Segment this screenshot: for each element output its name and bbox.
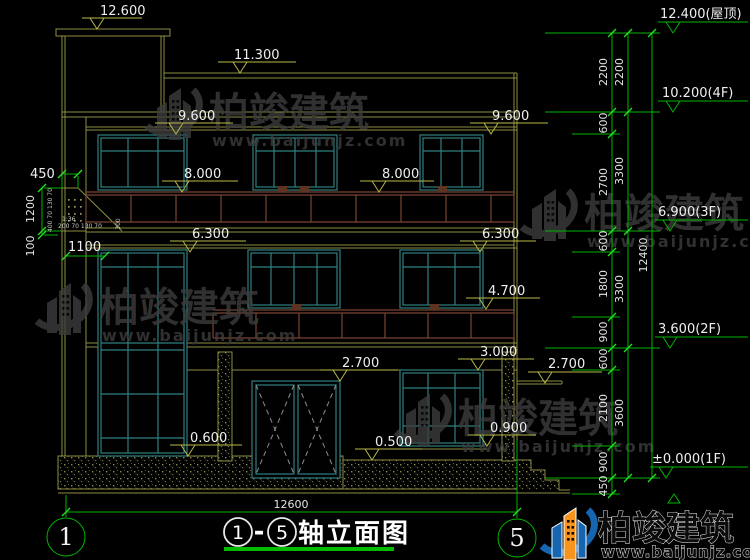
level-label-1f: ±0.000(1F)	[652, 452, 726, 467]
svg-text:11.300: 11.300	[234, 48, 280, 63]
dim-total-width: 12600	[274, 498, 309, 511]
level-label-roof: 12.400(屋顶)	[660, 7, 742, 22]
window-3f-right	[420, 135, 483, 190]
dim-100: 100	[24, 236, 37, 257]
svg-text:600: 600	[597, 349, 610, 370]
dim-1100: 1100	[68, 240, 101, 255]
watermark-url: www.baijunjz.com	[212, 131, 407, 150]
dim-1200: 1200	[24, 195, 37, 223]
elevation-drawing: 柏竣建筑 www.baijunjz.com 柏竣建筑 www.baijunjz.…	[0, 0, 750, 560]
svg-text:3600: 3600	[613, 399, 626, 427]
level-label-2f: 3.600(2F)	[658, 322, 721, 337]
svg-text:900: 900	[597, 452, 610, 473]
svg-text:6.300: 6.300	[482, 227, 519, 242]
brand-logo-url: www.baijunjz.com	[601, 543, 750, 560]
svg-text:900: 900	[597, 322, 610, 343]
brand-logo: 柏竣建筑 www.baijunjz.com	[542, 508, 750, 560]
svg-text:3300: 3300	[613, 157, 626, 185]
svg-text:2700: 2700	[597, 168, 610, 196]
svg-text:4.700: 4.700	[488, 284, 525, 299]
svg-text:9.600: 9.600	[178, 109, 215, 124]
watermark-url: www.baijunjz.com	[102, 326, 297, 345]
svg-text:0.600: 0.600	[190, 431, 227, 446]
svg-text:600: 600	[597, 231, 610, 252]
svg-text:400 70 130 70: 400 70 130 70	[47, 188, 54, 232]
svg-text:9.600: 9.600	[492, 109, 529, 124]
window-2f-center	[248, 250, 340, 308]
watermark-url: www.baijunjz.com	[461, 437, 656, 456]
curtain-window-left	[98, 250, 187, 456]
svg-text:1:36: 1:36	[62, 216, 76, 223]
window-2f-right	[400, 250, 483, 308]
svg-text:2.700: 2.700	[342, 356, 379, 371]
level-label-3f: 6.900(3F)	[658, 205, 721, 220]
svg-text:2200: 2200	[597, 58, 610, 86]
svg-text:300: 300	[115, 218, 122, 230]
watermark-brand: 柏竣建筑	[209, 90, 369, 136]
dim-450: 450	[30, 167, 55, 182]
svg-text:12.600: 12.600	[100, 4, 146, 19]
watermark-url: www.baijunjz.com	[587, 232, 750, 251]
level-label-4f: 10.200(4F)	[662, 86, 733, 101]
svg-text:2200: 2200	[613, 58, 626, 86]
svg-text:1800: 1800	[597, 270, 610, 298]
title-dash: -	[254, 517, 267, 547]
window-3f-left	[98, 135, 187, 190]
title-underline	[224, 547, 394, 551]
svg-text:200 70 130 70: 200 70 130 70	[58, 223, 102, 230]
axis-number-5: 5	[509, 524, 524, 552]
svg-text:3.000: 3.000	[480, 345, 517, 360]
svg-text:450: 450	[597, 476, 610, 497]
title-text: 轴立面图	[298, 518, 410, 549]
svg-text:1: 1	[232, 522, 244, 544]
svg-text:8.000: 8.000	[382, 167, 419, 182]
svg-text:600: 600	[597, 113, 610, 134]
axis-number-1: 1	[58, 523, 73, 551]
svg-text:5: 5	[276, 522, 288, 544]
svg-text:8.000: 8.000	[184, 167, 221, 182]
svg-text:2100: 2100	[597, 394, 610, 422]
svg-text:0.900: 0.900	[490, 421, 527, 436]
svg-text:6.300: 6.300	[192, 227, 229, 242]
entry-door	[252, 381, 340, 478]
watermark-brand: 柏竣建筑	[99, 285, 259, 331]
svg-text:2.700: 2.700	[548, 357, 585, 372]
svg-text:3300: 3300	[613, 275, 626, 303]
svg-text:0.500: 0.500	[375, 435, 412, 450]
svg-text:12400: 12400	[637, 238, 650, 273]
